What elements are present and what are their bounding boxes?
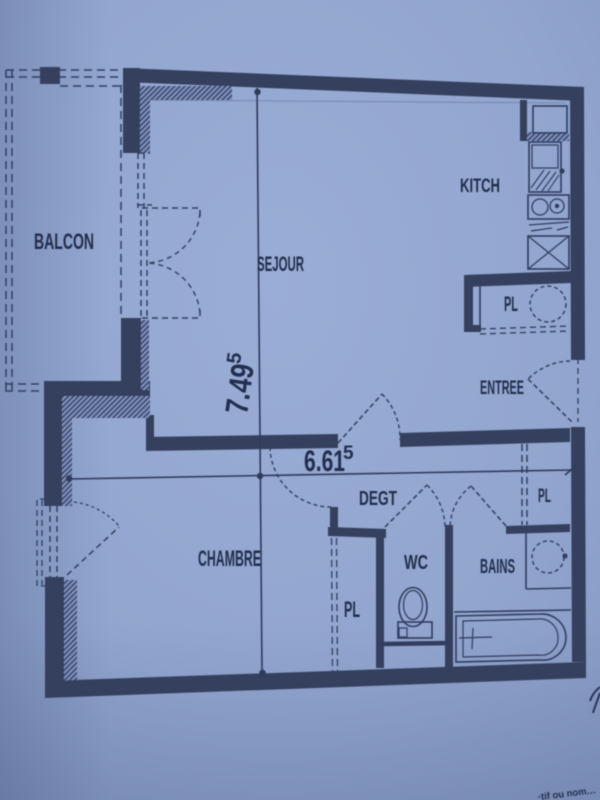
svg-text:PL: PL xyxy=(538,486,551,507)
svg-text:KITCH: KITCH xyxy=(460,176,500,197)
svg-text:PL: PL xyxy=(504,293,518,316)
svg-text:6.61: 6.61 xyxy=(304,445,345,478)
svg-text:BALCON: BALCON xyxy=(34,229,94,254)
svg-text:CHAMBRE: CHAMBRE xyxy=(198,546,261,571)
svg-text:ENTREE: ENTREE xyxy=(480,378,524,399)
svg-text:SEJOUR: SEJOUR xyxy=(257,253,304,276)
svg-text:PL: PL xyxy=(344,597,360,622)
svg-text:BAINS: BAINS xyxy=(480,556,515,578)
svg-text:WC: WC xyxy=(404,552,428,574)
svg-text:7.49: 7.49 xyxy=(218,361,261,416)
svg-text:DEGT: DEGT xyxy=(359,488,397,510)
svg-text:5: 5 xyxy=(343,443,354,464)
